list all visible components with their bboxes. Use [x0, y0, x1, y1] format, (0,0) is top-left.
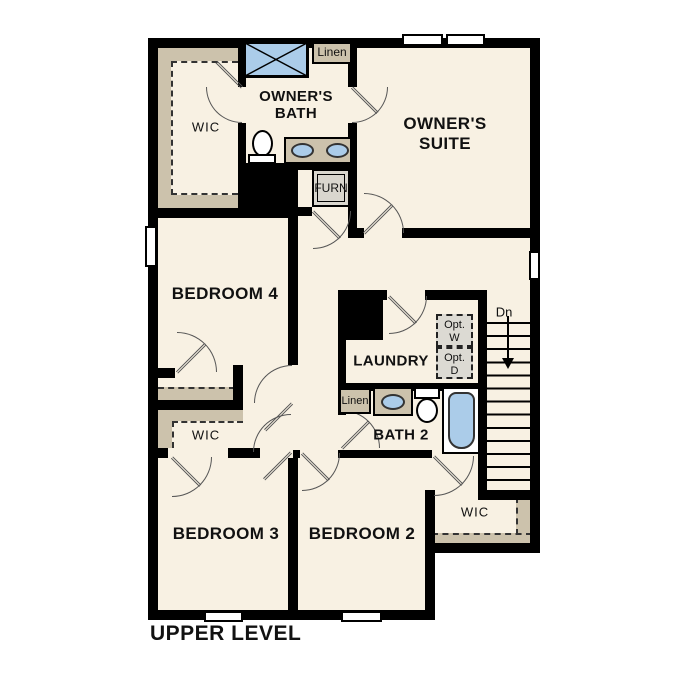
wall-bath2-bottom: [338, 450, 432, 458]
label-laundry: LAUNDRY: [353, 353, 429, 370]
label-stairs-down: Dn: [496, 305, 513, 320]
window: [204, 611, 243, 622]
wall-bedroom-divider: [288, 458, 298, 610]
window: [402, 34, 443, 46]
label-owners-wic: WIC: [192, 120, 220, 135]
stairs-down-arrow-head: [502, 358, 514, 369]
wall-suite-bottom: [402, 228, 530, 238]
wall-wic-bath-lower: [238, 123, 246, 168]
wall-bottom: [148, 610, 435, 620]
wall-bedroom4-right: [288, 218, 298, 365]
label-bedroom3: BEDROOM 3: [173, 524, 280, 544]
window: [529, 251, 540, 280]
optional-dryer: Opt. D: [436, 347, 473, 379]
bedroom4-closet-shelf: [158, 387, 235, 400]
label-bath2: BATH 2: [373, 427, 428, 444]
label-bedroom3-wic: WIC: [192, 428, 220, 443]
wall-wic2-bottom: [425, 543, 540, 553]
label-owners-bath: OWNER'S BATH: [248, 88, 344, 122]
opt-dryer-line2: D: [438, 365, 471, 378]
sink: [326, 143, 349, 158]
label-linen-bath2: Linen: [342, 395, 369, 407]
toilet: [416, 398, 438, 423]
wall-wic3-bottom-left: [148, 448, 168, 458]
opt-dryer-line1: Opt.: [438, 352, 471, 365]
opt-washer-line2: W: [438, 332, 471, 345]
wall-closet-bottom: [148, 400, 243, 410]
label-linen-upper: Linen: [317, 45, 346, 59]
window: [145, 226, 157, 267]
exterior-notch: [435, 553, 540, 620]
toilet-tank: [248, 154, 276, 164]
bathtub: [448, 392, 475, 449]
stairs-down-arrow: [507, 316, 509, 360]
optional-washer: Opt. W: [436, 314, 473, 347]
plan-title: UPPER LEVEL: [150, 622, 301, 646]
opt-washer-line1: Opt.: [438, 319, 471, 332]
wall-furn-stub: [298, 207, 312, 216]
label-owners-suite: OWNER'S SUITE: [390, 114, 500, 154]
window: [446, 34, 485, 46]
label-bedroom2-wic: WIC: [461, 505, 489, 520]
window: [341, 611, 382, 622]
sink: [291, 143, 314, 158]
toilet: [252, 130, 273, 157]
label-furnace: FURN: [314, 181, 347, 195]
label-bedroom2: BEDROOM 2: [309, 524, 416, 544]
bedroom2-wic-shelf-bottom: [432, 533, 532, 543]
wall-bedroom4-top: [148, 208, 298, 218]
wall-right: [530, 38, 540, 553]
floor-plan: Opt. W Opt. D WIC OWNER'S BATH OWNER'S S…: [0, 0, 687, 687]
wall-stairs-bottom: [478, 490, 540, 500]
wall-bedroom2-right: [425, 490, 435, 620]
wall-hall-south-stub: [293, 450, 300, 458]
wall-left: [148, 38, 158, 620]
wall-suite-bottom-stub: [348, 228, 364, 238]
label-bedroom4: BEDROOM 4: [172, 284, 279, 304]
sink: [381, 394, 405, 410]
shower: [243, 41, 309, 78]
wall-closet-top-stub: [148, 368, 175, 378]
